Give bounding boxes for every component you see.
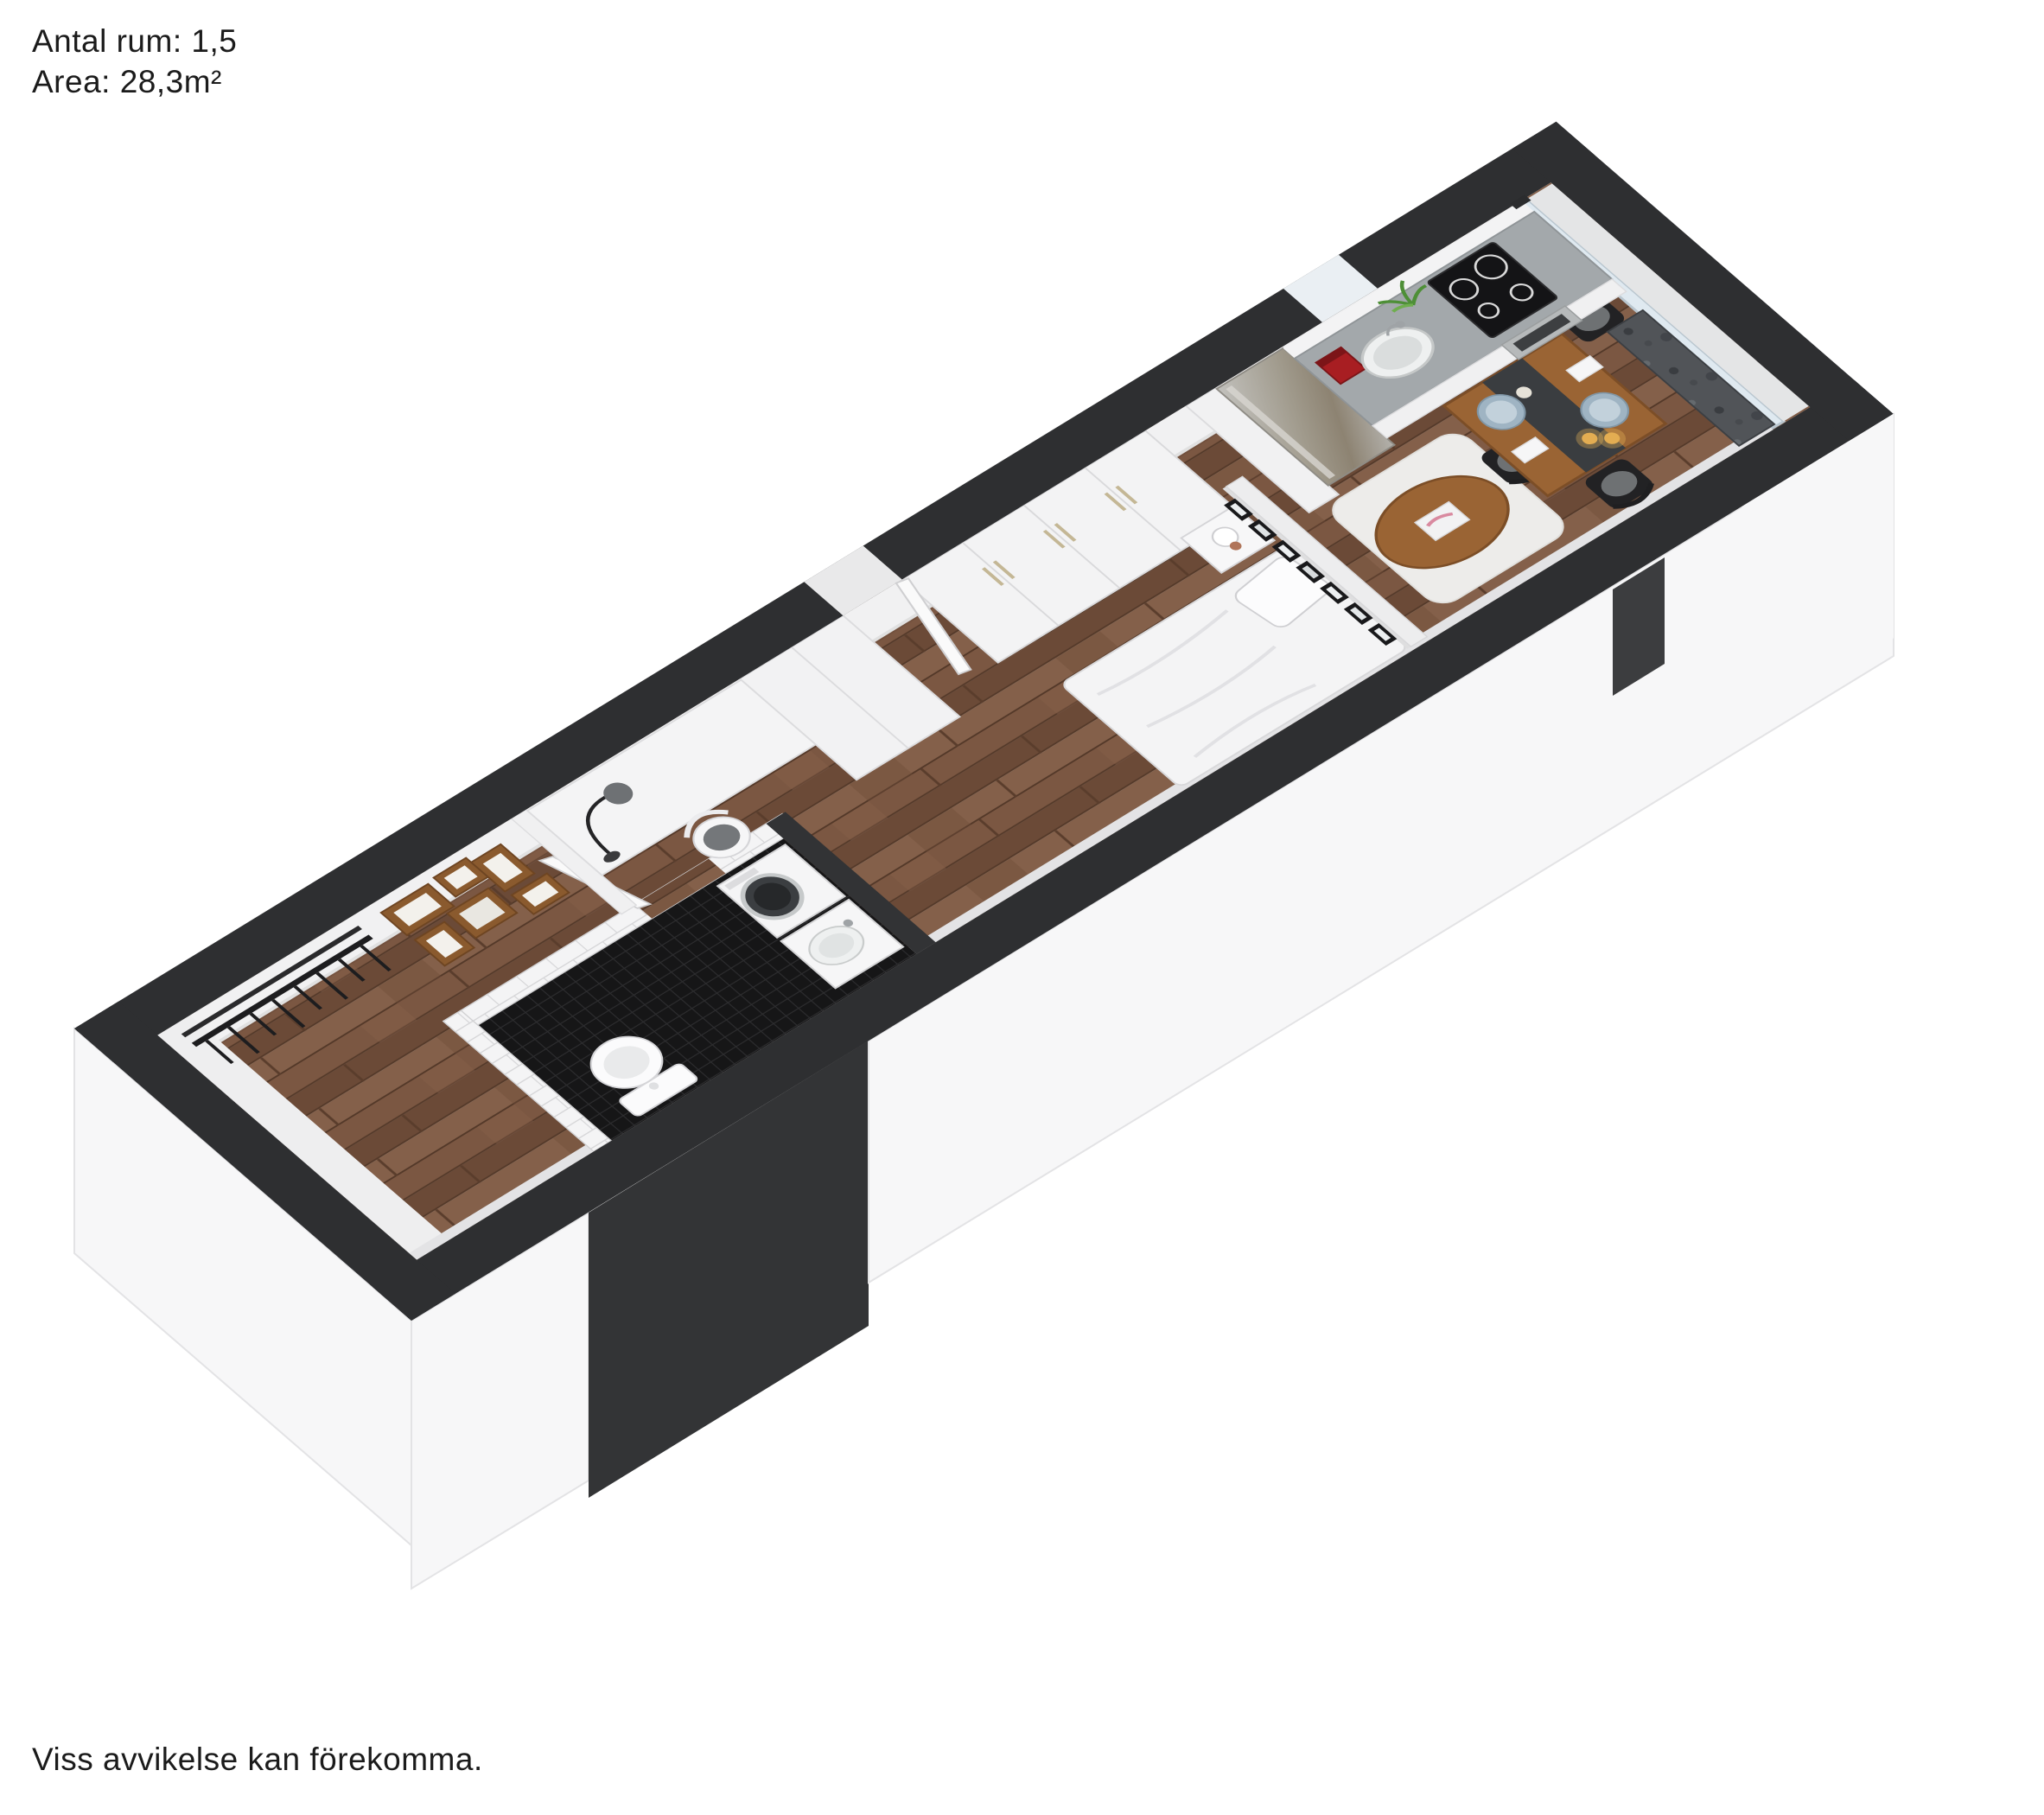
floorplan-page: Antal rum: 1,5 Area: 28,3m² xyxy=(0,0,2044,1815)
disclaimer-text: Viss avvikelse kan förekomma. xyxy=(32,1739,483,1780)
floorplan-rendering xyxy=(0,0,2044,1815)
